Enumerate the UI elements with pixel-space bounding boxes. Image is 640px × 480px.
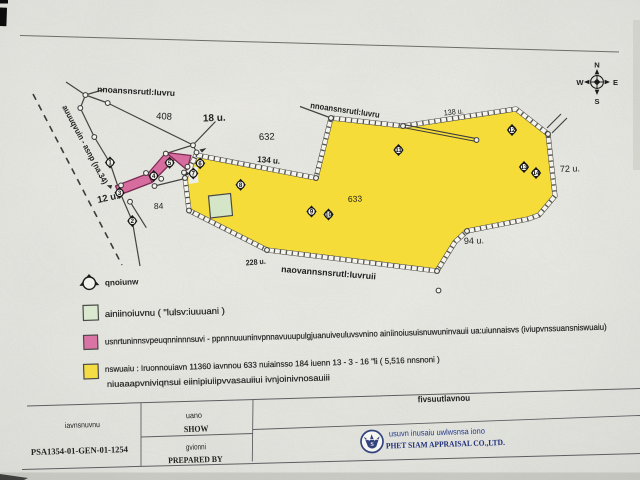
svg-text:uano: uano <box>186 411 203 420</box>
svg-text:94 u.: 94 u. <box>464 235 484 246</box>
svg-text:12: 12 <box>509 128 516 134</box>
svg-text:PREPARED BY: PREPARED BY <box>168 454 223 466</box>
svg-text:iavnsnuvnu: iavnsnuvnu <box>65 420 100 430</box>
svg-text:N: N <box>594 61 599 70</box>
svg-text:18 u.: 18 u. <box>203 113 226 125</box>
svg-text:14: 14 <box>533 171 540 177</box>
svg-text:72 u.: 72 u. <box>560 163 580 174</box>
svg-text:qnoiunw: qnoiunw <box>105 277 139 287</box>
svg-text:228 u.: 228 u. <box>245 257 266 268</box>
svg-text:13: 13 <box>521 165 528 171</box>
svg-text:11: 11 <box>395 148 402 154</box>
svg-text:10: 10 <box>325 213 332 219</box>
svg-text:SHOW: SHOW <box>184 423 209 434</box>
svg-text:134 u.: 134 u. <box>257 154 281 166</box>
svg-text:632: 632 <box>259 131 275 143</box>
svg-text:gvionni: gvionni <box>186 442 206 452</box>
svg-text:633: 633 <box>348 194 363 204</box>
svg-text:E: E <box>613 78 618 87</box>
svg-text:W: W <box>576 78 584 87</box>
svg-text:84: 84 <box>154 201 164 211</box>
svg-text:S: S <box>594 97 599 106</box>
svg-text:408: 408 <box>156 111 172 123</box>
svg-text:fivsuutlavnou: fivsuutlavnou <box>418 393 471 405</box>
